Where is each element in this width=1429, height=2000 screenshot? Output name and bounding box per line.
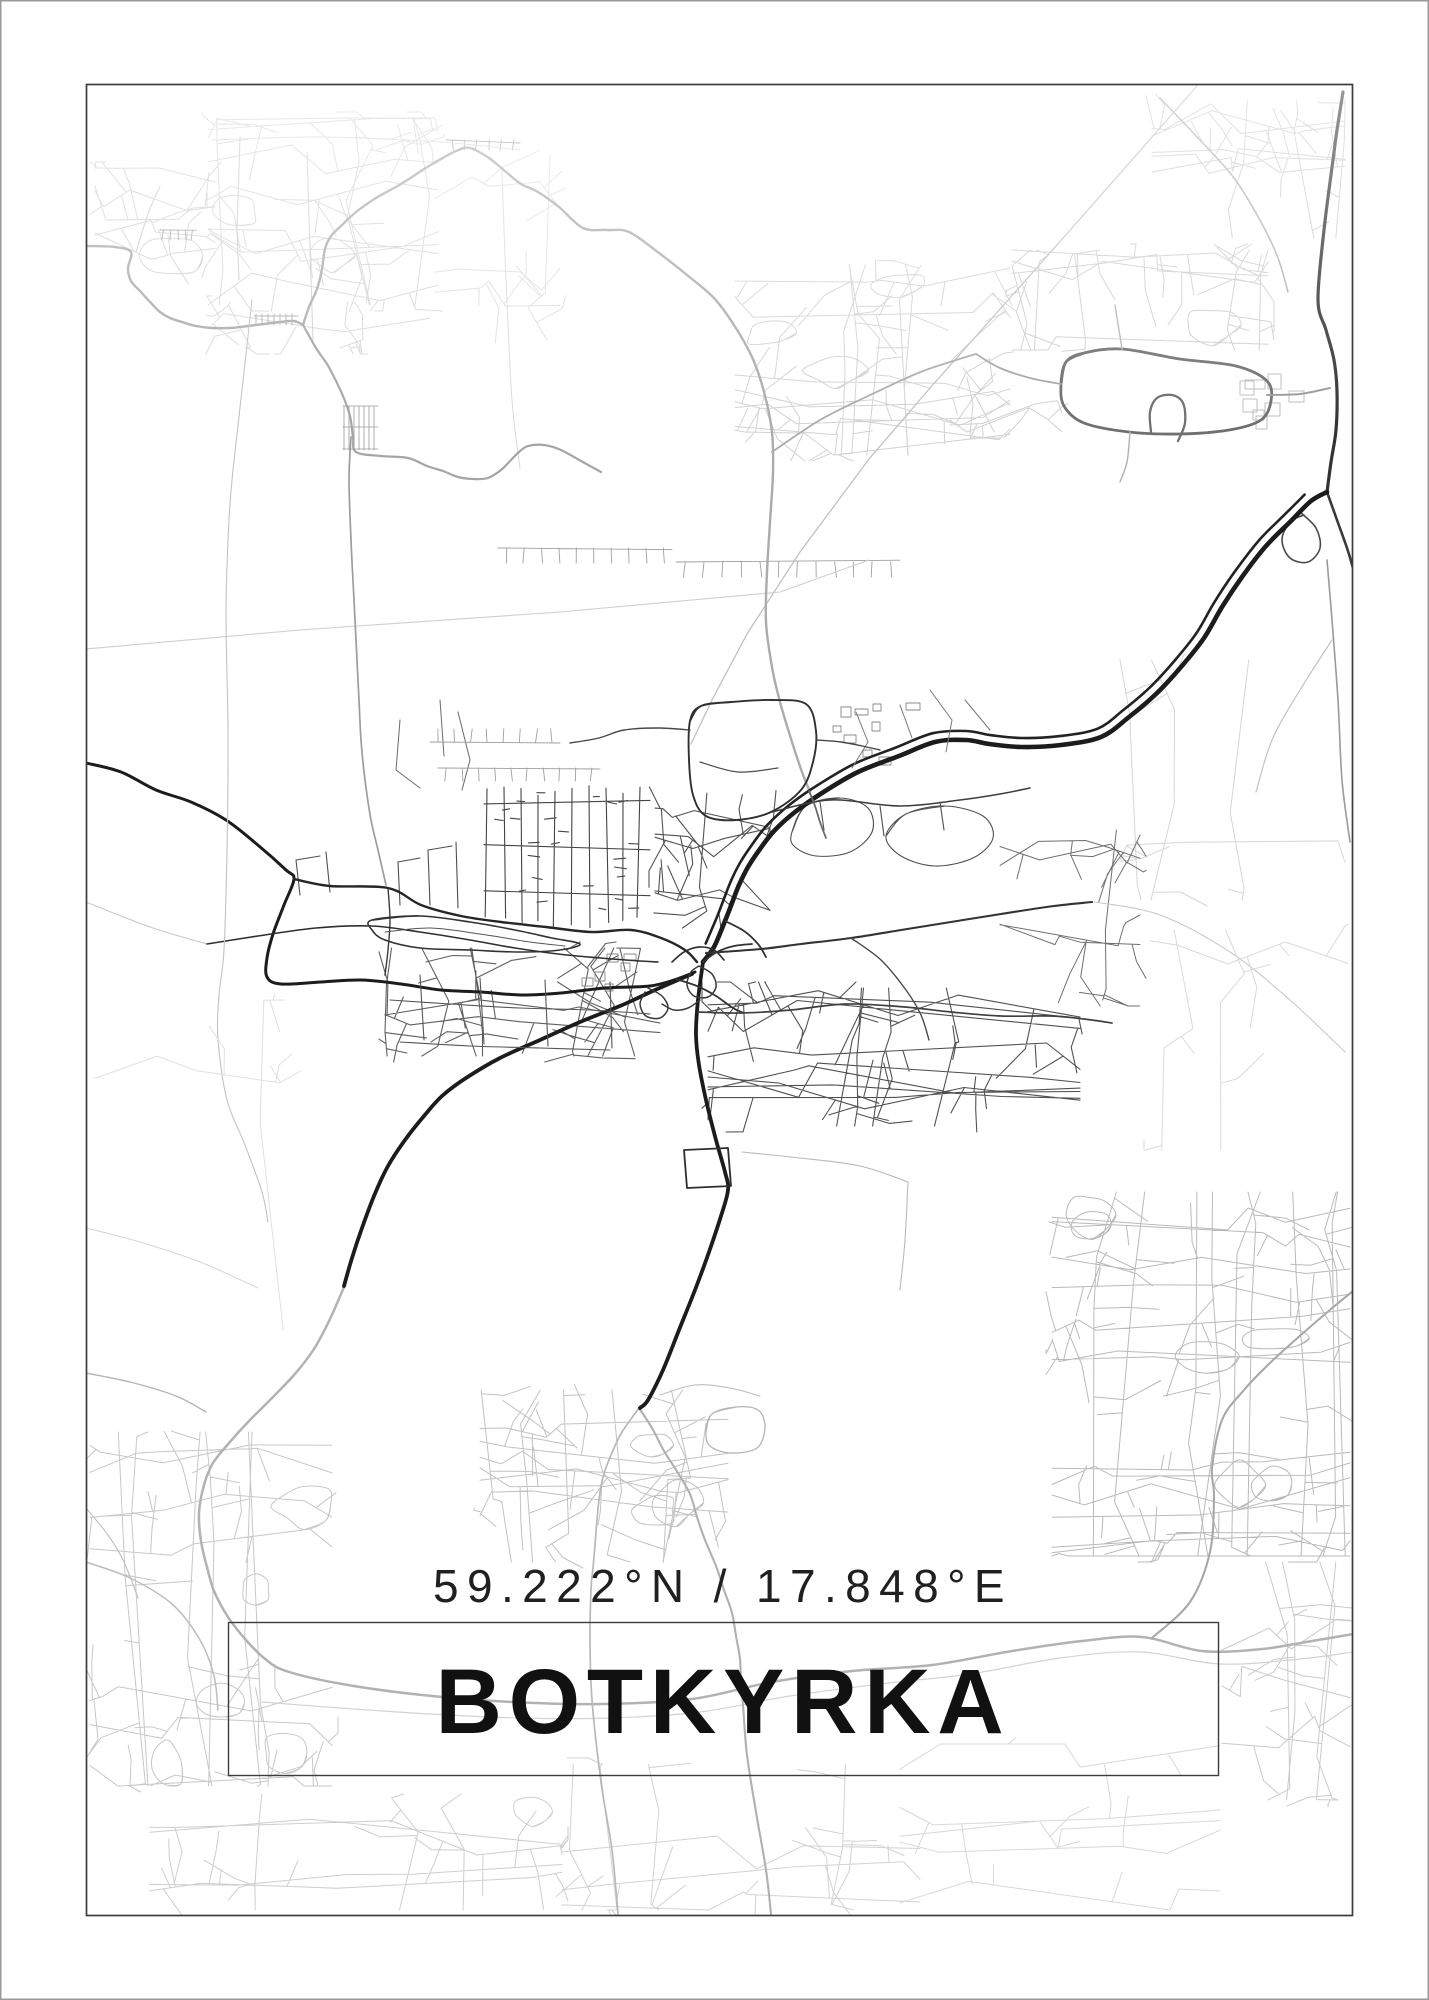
svg-text:59.222°N / 17.848°E: 59.222°N / 17.848°E <box>433 1560 1013 1612</box>
svg-text:BOTKYRKA: BOTKYRKA <box>436 1651 1011 1753</box>
